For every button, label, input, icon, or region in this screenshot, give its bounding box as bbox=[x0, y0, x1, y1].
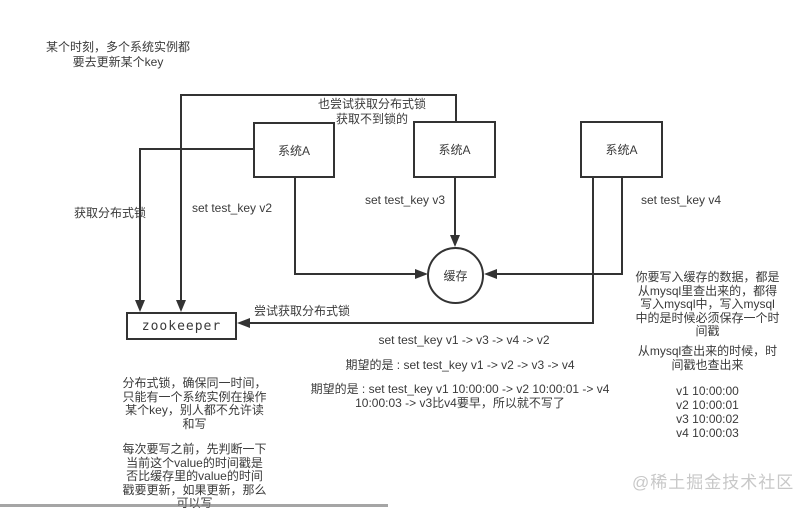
arrowhead-set-v3-down-icon bbox=[450, 235, 460, 247]
system-a-box-3: 系统A bbox=[580, 121, 663, 178]
set-v2-label: set test_key v2 bbox=[192, 201, 272, 215]
system-a-label-1: 系统A bbox=[278, 142, 310, 159]
top-left-note: 某个时刻，多个系统实例都 要去更新某个key bbox=[28, 40, 208, 70]
set-v4-line-h bbox=[497, 273, 623, 275]
arrowhead-try-acquire-lock-left-icon bbox=[237, 318, 250, 328]
try-acquire-lock-label: 尝试获取分布式锁 bbox=[254, 302, 350, 319]
timestamps-list: v1 10:00:00 v2 10:00:01 v3 10:00:02 v4 1… bbox=[625, 384, 790, 440]
set-v4-label: set test_key v4 bbox=[641, 193, 721, 207]
also-try-lock-line-v-short bbox=[455, 94, 457, 121]
acquire-lock-label: 获取分布式锁 bbox=[74, 204, 146, 221]
system-a-box-2: 系统A bbox=[413, 121, 496, 178]
write-check-note: 每次要写之前，先判断一下 当前这个value的时间戳是 否比缓存里的value的… bbox=[112, 443, 277, 511]
watermark: @稀土掘金技术社区 bbox=[632, 468, 794, 493]
mysql-write-note: 你要写入缓存的数据，都是 从mysql里查出来的，都得 写入mysql中，写入m… bbox=[625, 271, 790, 339]
arrowhead-acquire-lock-down-icon bbox=[135, 300, 145, 312]
expected-order-note: 期望的是 : set test_key v1 -> v2 -> v3 -> v4 bbox=[330, 359, 590, 373]
acquire-lock-line-h bbox=[140, 148, 253, 150]
system-a-label-2: 系统A bbox=[438, 141, 470, 158]
arrowhead-set-v4-left-icon bbox=[484, 269, 497, 279]
system-a-label-3: 系统A bbox=[605, 141, 637, 158]
mysql-read-note: 从mysql查出来的时候，时 间戳也查出来 bbox=[625, 345, 790, 372]
try-acquire-lock-line-v bbox=[592, 178, 594, 324]
lock-explain-note: 分布式锁，确保同一时间， 只能有一个系统实例在操作 某个key，别人都不允许读 … bbox=[112, 377, 277, 431]
cache-label: 缓存 bbox=[443, 267, 467, 284]
set-v3-line-v bbox=[454, 178, 456, 236]
actual-order-note: set test_key v1 -> v3 -> v4 -> v2 bbox=[334, 334, 594, 348]
set-v4-line-v bbox=[621, 178, 623, 275]
zookeeper-box: zookeeper bbox=[126, 312, 237, 340]
set-v2-line-v bbox=[294, 178, 296, 275]
try-acquire-lock-line-h bbox=[250, 322, 594, 324]
system-a-box-1: 系统A bbox=[253, 122, 335, 178]
expected-with-time-note: 期望的是 : set test_key v1 10:00:00 -> v2 10… bbox=[308, 382, 612, 410]
set-v3-label: set test_key v3 bbox=[365, 193, 445, 207]
zookeeper-label: zookeeper bbox=[142, 319, 221, 334]
arrowhead-also-try-lock-down-icon bbox=[176, 300, 186, 312]
cache-node: 缓存 bbox=[427, 247, 484, 304]
also-try-lock-line-h bbox=[181, 94, 457, 96]
acquire-lock-line-v bbox=[139, 148, 141, 300]
set-v2-line-h bbox=[294, 273, 416, 275]
also-try-lock-line-v bbox=[180, 94, 182, 301]
